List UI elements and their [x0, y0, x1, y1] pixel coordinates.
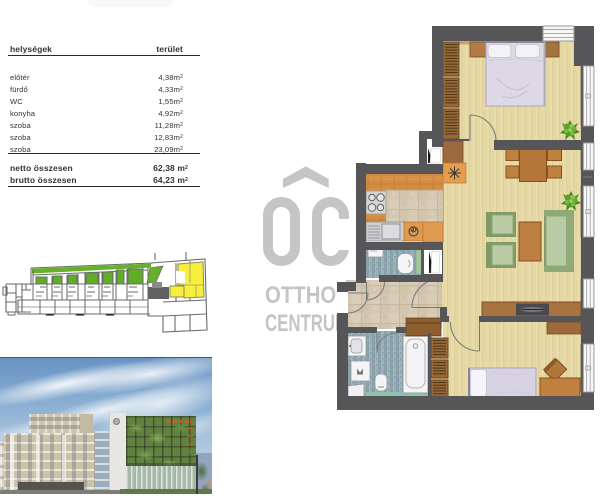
svg-text:CENTRUM: CENTRUM: [265, 311, 349, 337]
